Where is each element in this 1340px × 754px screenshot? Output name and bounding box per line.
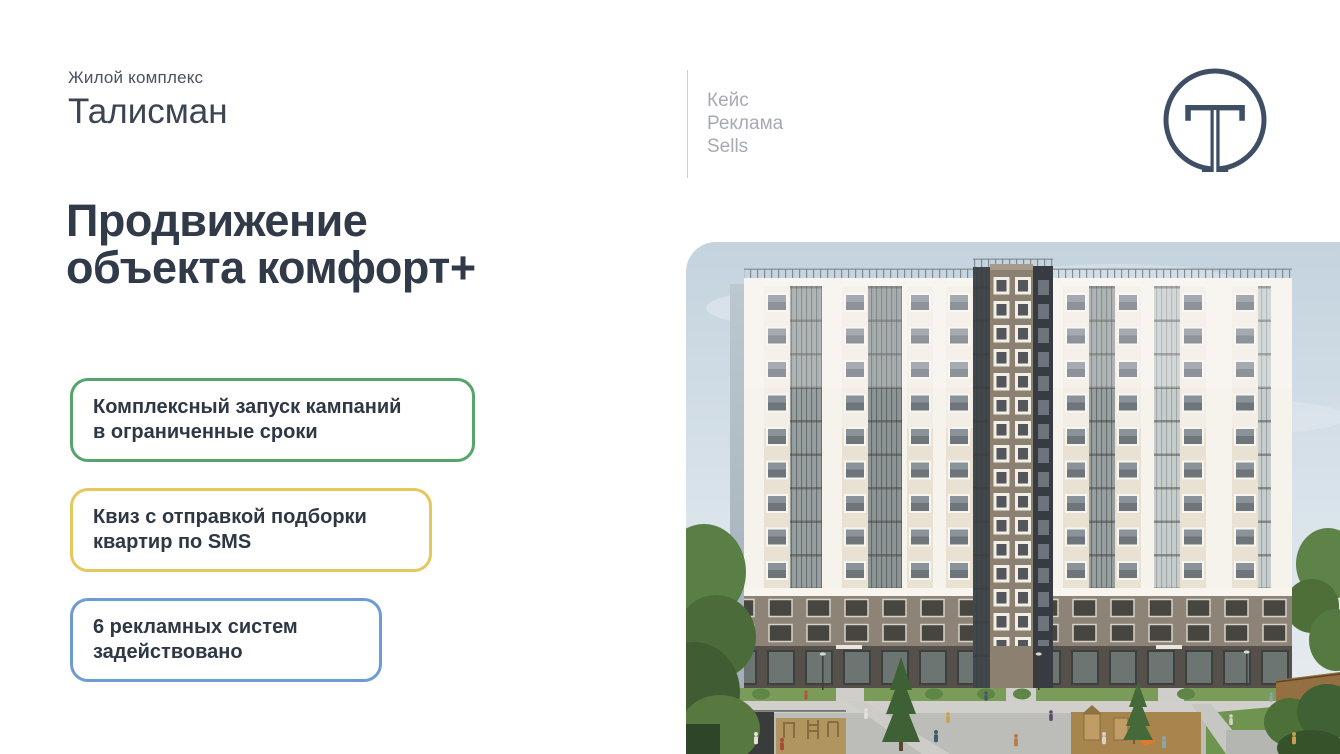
case-label-sells: Sells: [707, 135, 783, 158]
feature-text: 6 рекламных систем задействовано: [73, 615, 298, 665]
brand-block: Жилой комплекс Талисман: [68, 68, 228, 132]
brand-label: Жилой комплекс: [68, 68, 228, 88]
slide: { "brand": { "label": "Жилой комплекс", …: [0, 0, 1340, 754]
case-label-reklama: Реклама: [707, 112, 783, 135]
logo-stem-split: [1214, 110, 1217, 174]
feature-card-quiz-sms: Квиз с отправкой подборки квартир по SMS: [70, 488, 432, 572]
case-divider-line: [687, 70, 688, 178]
building-photo: [686, 242, 1340, 754]
feature-card-ad-systems: 6 рекламных систем задействовано: [70, 598, 382, 682]
feature-text: Комплексный запуск кампаний в ограниченн…: [73, 395, 401, 445]
talisman-logo-icon: T: [1161, 66, 1269, 174]
feature-card-campaign-launch: Комплексный запуск кампаний в ограниченн…: [70, 378, 475, 462]
page-title: Продвижение объекта комфорт+: [66, 197, 566, 291]
feature-text: Квиз с отправкой подборки квартир по SMS: [73, 505, 367, 555]
case-label-list: Кейс Реклама Sells: [707, 89, 783, 158]
building-render-svg: [686, 242, 1340, 754]
case-label-keis: Кейс: [707, 89, 783, 112]
brand-name: Талисман: [68, 92, 228, 132]
